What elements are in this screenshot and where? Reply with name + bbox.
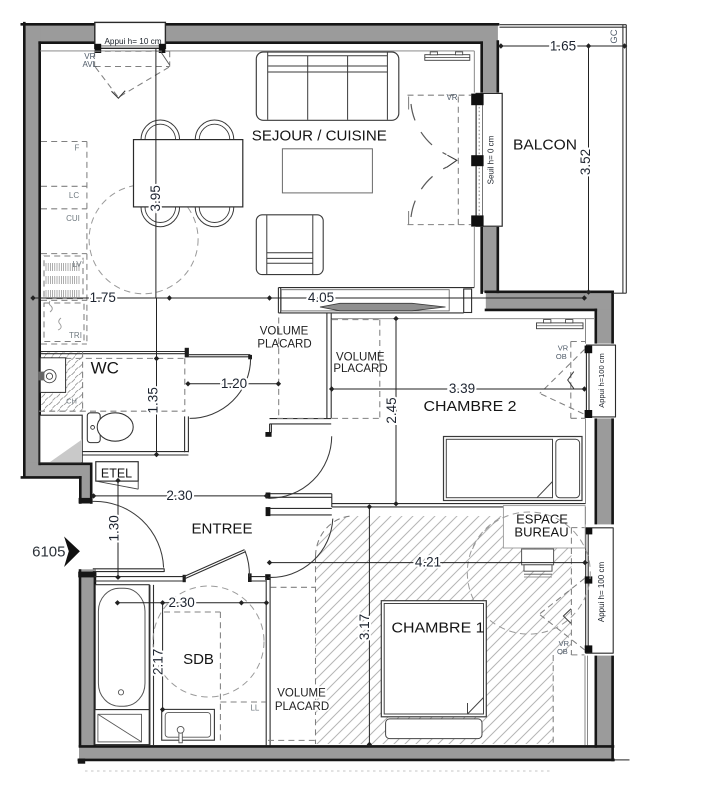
svg-text:OB: OB	[557, 647, 568, 656]
svg-text:LV: LV	[72, 260, 82, 269]
svg-text:3.17: 3.17	[357, 614, 372, 640]
svg-text:Appui h= 100 cm: Appui h= 100 cm	[597, 562, 606, 623]
svg-text:SEJOUR / CUISINE: SEJOUR / CUISINE	[252, 127, 387, 144]
svg-text:Seuil h= 0 cm: Seuil h= 0 cm	[487, 135, 496, 184]
svg-text:3.39: 3.39	[449, 381, 475, 396]
svg-text:VOLUME: VOLUME	[260, 326, 309, 338]
svg-text:2.30: 2.30	[168, 595, 194, 610]
svg-text:Appui h= 10 cm: Appui h= 10 cm	[104, 37, 161, 46]
svg-text:3.52: 3.52	[578, 149, 593, 175]
svg-text:VR: VR	[446, 93, 457, 102]
svg-text:LC: LC	[69, 191, 79, 200]
svg-text:CHAMBRE 2: CHAMBRE 2	[424, 398, 517, 415]
svg-text:Appui h=100 cm: Appui h=100 cm	[597, 353, 606, 407]
svg-text:BUREAU: BUREAU	[514, 525, 568, 540]
svg-text:PLACARD: PLACARD	[333, 363, 387, 375]
svg-text:1.35: 1.35	[146, 387, 161, 413]
svg-text:OB: OB	[556, 352, 567, 361]
svg-text:1.30: 1.30	[106, 515, 121, 541]
svg-text:BALCON: BALCON	[513, 137, 577, 154]
svg-text:CUI: CUI	[66, 214, 80, 223]
svg-text:4.05: 4.05	[308, 290, 334, 305]
svg-text:1.20: 1.20	[221, 376, 247, 391]
svg-text:1.65: 1.65	[550, 38, 576, 53]
svg-text:6105: 6105	[32, 543, 65, 560]
svg-text:VOLUME: VOLUME	[277, 688, 326, 700]
svg-text:CH: CH	[66, 396, 77, 405]
svg-text:PLACARD: PLACARD	[275, 701, 329, 713]
svg-text:ETEL: ETEL	[101, 466, 132, 480]
svg-text:VOLUME: VOLUME	[336, 352, 385, 364]
svg-text:F: F	[75, 143, 80, 152]
svg-text:3.95: 3.95	[148, 185, 163, 211]
svg-text:4.21: 4.21	[415, 555, 441, 570]
svg-text:WC: WC	[91, 359, 119, 378]
svg-text:2.30: 2.30	[166, 488, 192, 503]
svg-text:GC: GC	[609, 29, 620, 43]
svg-text:2.17: 2.17	[151, 649, 166, 675]
svg-text:LL: LL	[250, 704, 259, 713]
svg-text:AVL: AVL	[83, 60, 98, 69]
svg-text:SDB: SDB	[183, 651, 214, 668]
svg-text:2.45: 2.45	[384, 397, 399, 423]
svg-text:PLACARD: PLACARD	[257, 339, 311, 351]
svg-text:CHAMBRE 1: CHAMBRE 1	[392, 620, 485, 637]
svg-text:1.75: 1.75	[90, 290, 116, 305]
svg-text:TRI: TRI	[69, 331, 82, 340]
svg-text:ENTREE: ENTREE	[192, 520, 253, 537]
